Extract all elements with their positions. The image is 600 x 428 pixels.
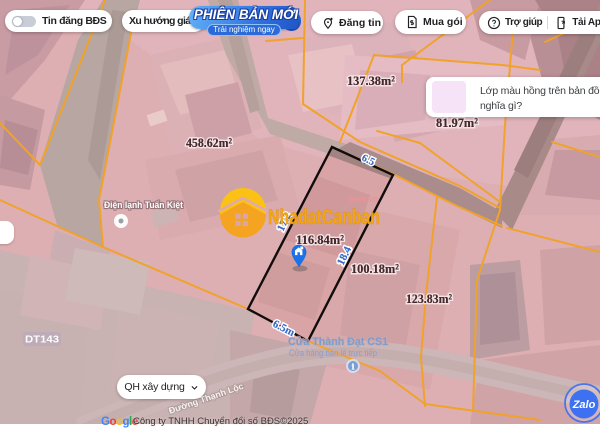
svg-text:137.38m²: 137.38m² <box>347 73 395 88</box>
svg-text:DT143: DT143 <box>25 335 59 346</box>
svg-text:Cửa hàng bán lẻ trực tiếp: Cửa hàng bán lẻ trực tiếp <box>289 348 377 358</box>
svg-text:NhadatCanban: NhadatCanban <box>268 206 380 229</box>
svg-text:123.83m²: 123.83m² <box>406 291 452 306</box>
svg-text:116.84m²: 116.84m² <box>296 232 344 247</box>
svg-text:458.62m²: 458.62m² <box>186 135 232 150</box>
svg-text:com.vn: com.vn <box>349 194 378 204</box>
svg-text:100.18m²: 100.18m² <box>351 261 399 276</box>
svg-text:Điện lạnh Tuấn Kiệt: Điện lạnh Tuấn Kiệt <box>104 200 184 211</box>
svg-text:81.97m²: 81.97m² <box>436 115 478 130</box>
svg-text:Cửa Thành Đạt CS1: Cửa Thành Đạt CS1 <box>288 336 388 348</box>
svg-text:Zalo: Zalo <box>572 399 596 411</box>
